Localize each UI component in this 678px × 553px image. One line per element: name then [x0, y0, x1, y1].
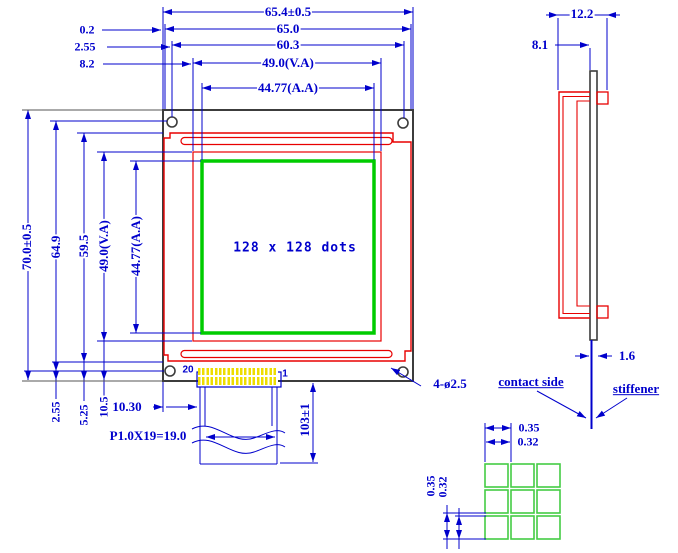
mounting-hole-top-right: [398, 118, 408, 128]
offset-hole-bottom-label: 2.55: [50, 401, 63, 424]
flex-cable: [192, 372, 285, 464]
display-resolution-label: 128 x 128 dots: [232, 241, 358, 256]
dim-bezel-height-label: 59.5: [77, 234, 91, 259]
dot-grid: [485, 464, 560, 539]
dim-board-width-label: 65.0: [276, 22, 301, 36]
side-tab-bottom: [597, 306, 608, 318]
side-view: [559, 71, 608, 429]
stiffener-label: stiffener: [612, 382, 660, 396]
connector-pins-upper: [198, 368, 278, 375]
dim-side-depth-label: 12.2: [570, 7, 595, 21]
dim-viewing-width-label: 49.0(V.A): [261, 56, 315, 70]
dim-active-width-label: 44.77(A.A): [257, 81, 319, 95]
dot-vsize-label: 0.32: [437, 476, 450, 499]
flex-break-wave-2: [192, 440, 285, 453]
dim-pin-pitch-label: P1.0X19=19.0: [109, 429, 188, 443]
bezel-slot-top: [181, 138, 392, 145]
pin-20-label: 20: [181, 365, 194, 376]
offset-viewing-bottom-label: 10.5: [98, 396, 111, 419]
dot-hpitch-label: 0.35: [518, 422, 541, 435]
pin-1-label: 1: [281, 369, 289, 380]
side-dimension-lines: [537, 15, 627, 418]
dim-pcb-thickness-label: 1.6: [618, 349, 636, 363]
dot-dimension-lines: [443, 423, 511, 549]
offset-board-edge-label: 0.2: [79, 24, 96, 37]
dim-overall-height-label: 70.0±0.5: [20, 223, 34, 271]
mounting-hole-bottom-left: [165, 366, 175, 376]
dot-hsize-label: 0.32: [517, 436, 540, 449]
mounting-hole-top-left: [167, 117, 177, 127]
mounting-holes-note-label: 4-ø2.5: [432, 377, 468, 391]
offset-bezel-bottom-label: 5.25: [78, 404, 91, 427]
side-pcb-glass: [590, 71, 597, 340]
side-bezel-outer: [559, 92, 590, 318]
bezel-slot-bottom: [181, 351, 392, 358]
side-tab-top: [597, 92, 608, 104]
dim-hole-span-label: 60.3: [276, 38, 301, 52]
dim-connector-offset-label: 10.30: [111, 400, 142, 414]
dot-pitch-detail: [443, 423, 560, 549]
side-bezel-lip: [577, 101, 590, 306]
lcd-module-drawing: 65.4±0.5 65.0 60.3 49.0(V.A) 44.77(A.A) …: [0, 0, 678, 553]
dim-viewing-height-label: 49.0(V.A): [97, 219, 111, 273]
offset-viewing-edge-label: 8.2: [79, 58, 96, 71]
dim-active-height-label: 44.77(A.A): [129, 215, 143, 277]
contact-side-label: contact side: [497, 375, 564, 389]
dim-tail-length-label: 103±1: [298, 402, 312, 437]
connector-pins-lower: [198, 377, 278, 385]
drawing-geometry: [0, 0, 678, 553]
offset-hole-edge-label: 2.55: [74, 41, 97, 54]
dim-overall-width-label: 65.4±0.5: [264, 5, 312, 19]
dim-hole-vspan-label: 64.9: [49, 235, 63, 260]
dim-bezel-depth-label: 8.1: [531, 38, 549, 52]
